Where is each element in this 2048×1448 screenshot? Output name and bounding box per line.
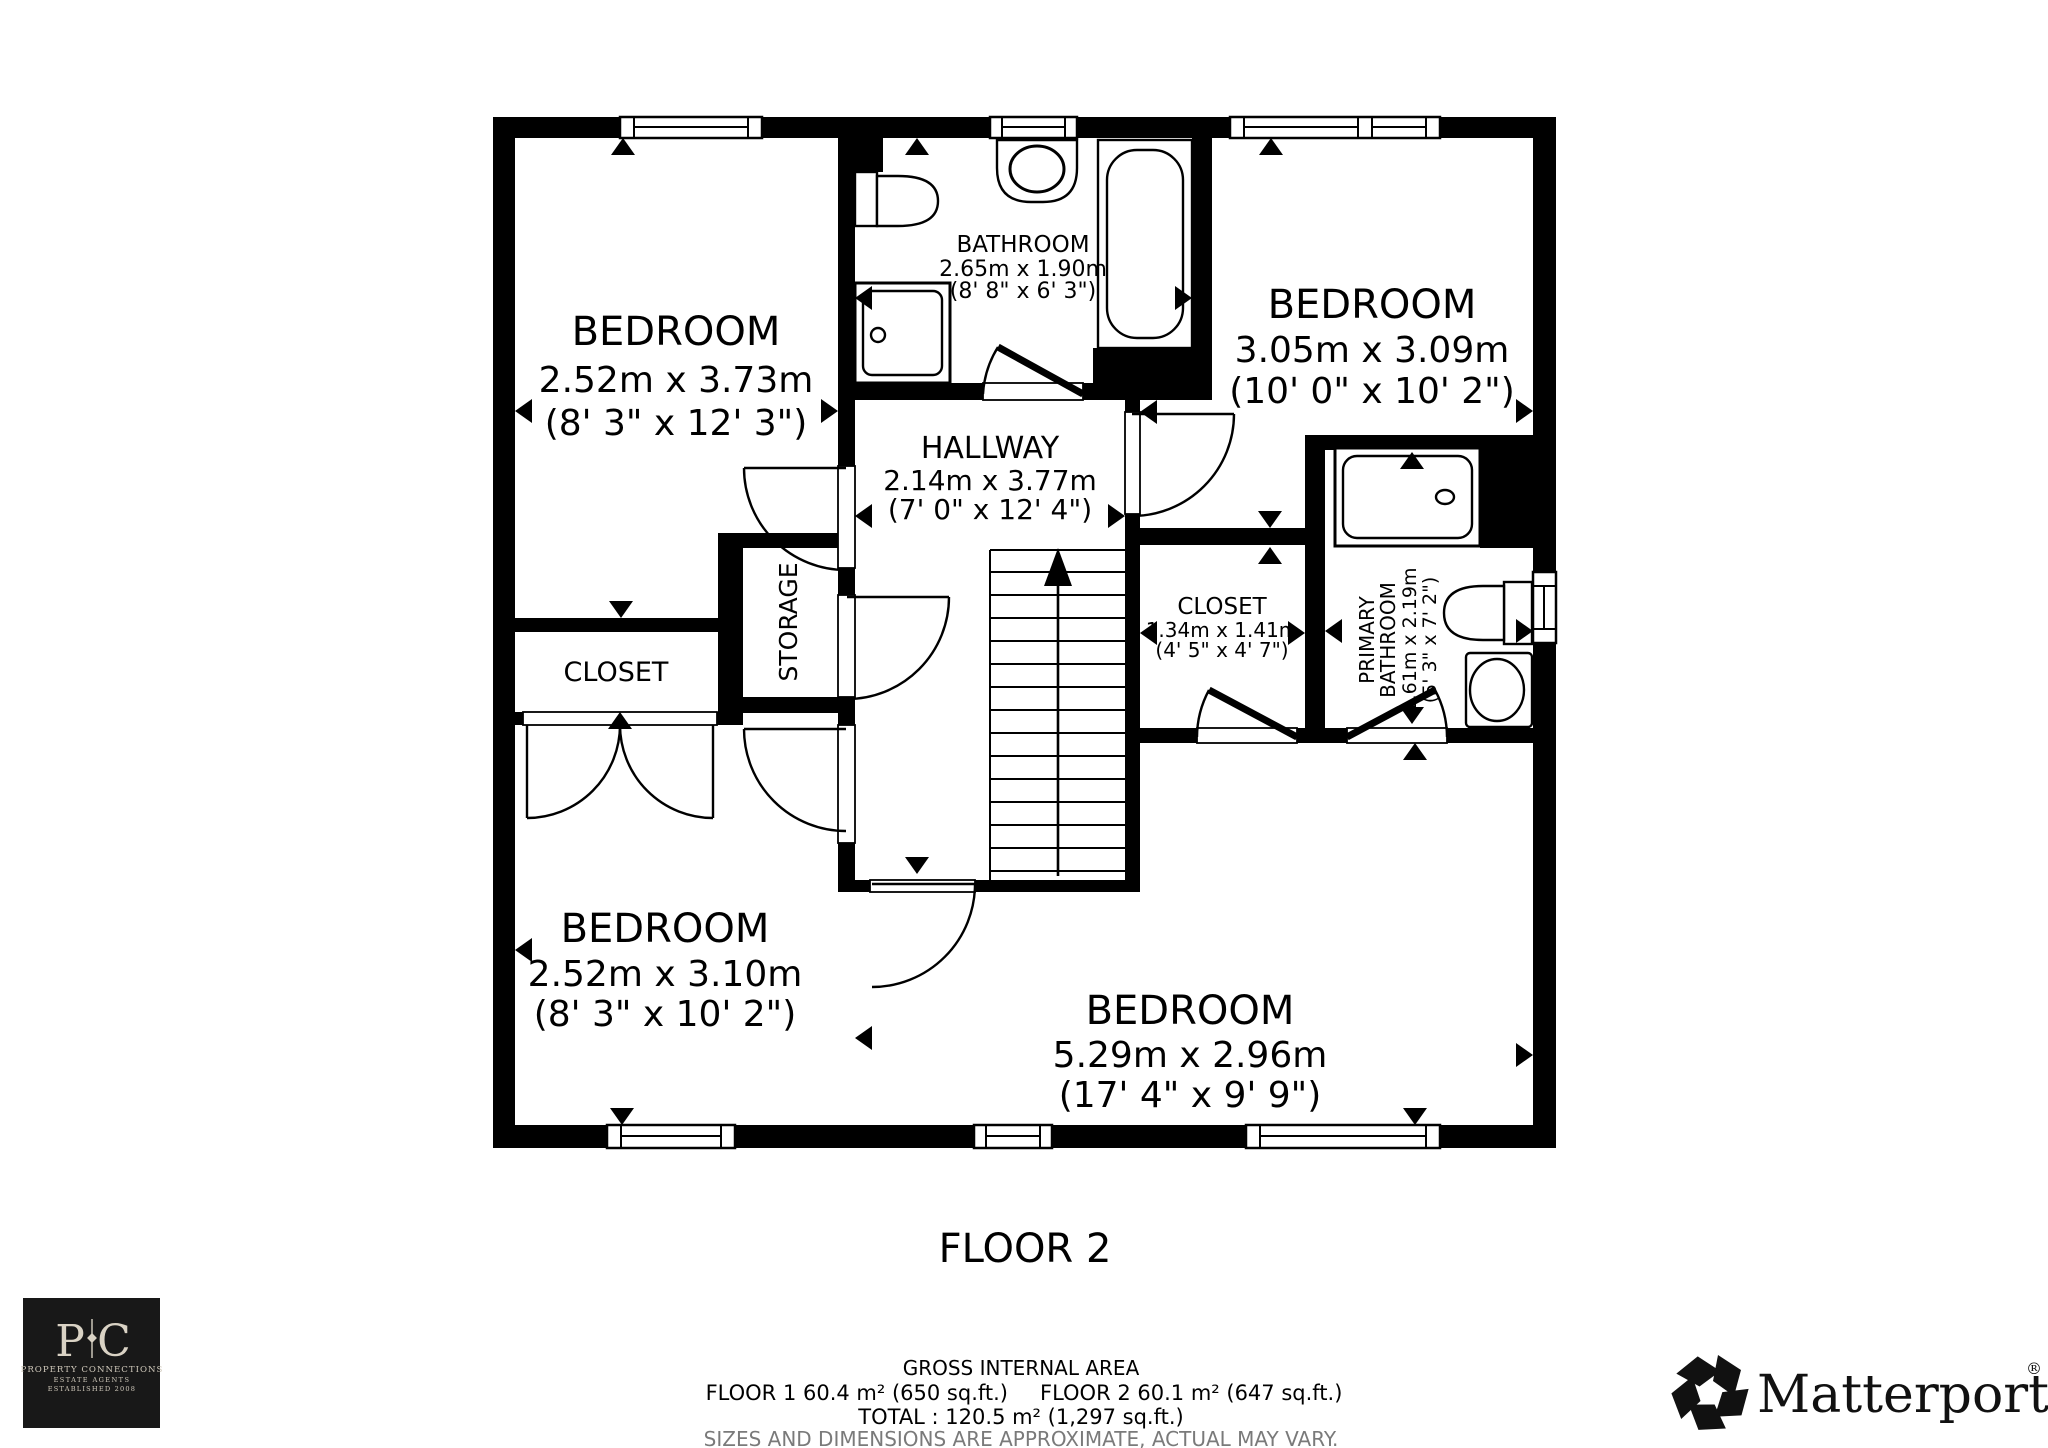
svg-text:BATHROOM: BATHROOM bbox=[1376, 582, 1400, 698]
svg-text:(4' 5" x 4' 7"): (4' 5" x 4' 7") bbox=[1155, 638, 1288, 662]
footer-floor1: FLOOR 1 60.4 m² (650 sq.ft.) bbox=[706, 1381, 1008, 1405]
matterport-icon bbox=[1663, 1352, 1756, 1442]
primary-sink-icon bbox=[1466, 653, 1532, 727]
svg-text:CLOSET: CLOSET bbox=[564, 657, 669, 688]
label-bedroom-top-left: BEDROOM 2.52m x 3.73m (8' 3" x 12' 3") bbox=[539, 309, 814, 444]
label-hallway: HALLWAY 2.14m x 3.77m (7' 0" x 12' 4") bbox=[883, 431, 1097, 526]
footer-title: GROSS INTERNAL AREA bbox=[903, 1356, 1140, 1380]
window bbox=[990, 117, 1077, 138]
floor-title: FLOOR 2 bbox=[939, 1226, 1112, 1272]
agency-tagline2: ESTABLISHED 2008 bbox=[48, 1385, 136, 1393]
window bbox=[620, 117, 762, 138]
sink-icon bbox=[997, 140, 1077, 202]
label-bedroom-top-right: BEDROOM 3.05m x 3.09m (10' 0" x 10' 2") bbox=[1229, 282, 1515, 412]
toilet-icon bbox=[855, 172, 938, 226]
svg-text:(17' 4" x 9' 9"): (17' 4" x 9' 9") bbox=[1059, 1075, 1322, 1116]
door-bedroom-bottom bbox=[870, 880, 975, 987]
matterport-registered-icon: ® bbox=[2026, 1359, 2042, 1378]
svg-text:2.52m x 3.73m: 2.52m x 3.73m bbox=[539, 360, 814, 401]
door-bathroom bbox=[983, 347, 1083, 400]
svg-text:(8' 8" x 6' 3"): (8' 8" x 6' 3") bbox=[950, 279, 1096, 304]
label-primary-bathroom: PRIMARY BATHROOM 1.61m x 2.19m (5' 3" x … bbox=[1355, 568, 1441, 713]
label-storage: STORAGE bbox=[774, 562, 803, 681]
footer: GROSS INTERNAL AREA FLOOR 1 60.4 m² (650… bbox=[704, 1356, 1343, 1448]
footer-total: TOTAL : 120.5 m² (1,297 sq.ft.) bbox=[857, 1405, 1183, 1429]
svg-text:BEDROOM: BEDROOM bbox=[1268, 282, 1477, 328]
svg-text:(5' 3" x 7' 2"): (5' 3" x 7' 2") bbox=[1419, 577, 1441, 704]
label-bathroom: BATHROOM 2.65m x 1.90m (8' 8" x 6' 3") bbox=[939, 232, 1107, 304]
stairs-up-arrow bbox=[1044, 548, 1072, 876]
agency-logo: P C PROPERTY CONNECTIONS ESTATE AGENTS E… bbox=[21, 1298, 164, 1428]
matterport-wordmark: Matterport bbox=[1757, 1365, 2048, 1425]
matterport-logo: Matterport ® bbox=[1663, 1352, 2048, 1442]
svg-text:5.29m x 2.96m: 5.29m x 2.96m bbox=[1053, 1035, 1328, 1076]
window bbox=[607, 1125, 735, 1148]
stairs bbox=[990, 548, 1125, 880]
door-closet-mid bbox=[1197, 690, 1297, 743]
footer-floor2: FLOOR 2 60.1 m² (647 sq.ft.) bbox=[1040, 1381, 1342, 1405]
door-bedroom-bottom-left bbox=[744, 725, 855, 843]
svg-text:CLOSET: CLOSET bbox=[1177, 594, 1267, 620]
label-closet-mid: CLOSET 1.34m x 1.41m (4' 5" x 4' 7") bbox=[1146, 594, 1299, 662]
agency-tagline1: ESTATE AGENTS bbox=[54, 1376, 131, 1384]
floorplan-svg: BEDROOM 2.52m x 3.73m (8' 3" x 12' 3") B… bbox=[0, 0, 2048, 1448]
svg-text:BEDROOM: BEDROOM bbox=[561, 906, 770, 952]
svg-text:BATHROOM: BATHROOM bbox=[956, 232, 1089, 258]
door-storage bbox=[838, 595, 949, 699]
room-labels: BEDROOM 2.52m x 3.73m (8' 3" x 12' 3") B… bbox=[528, 232, 1515, 1116]
agency-name: PROPERTY CONNECTIONS bbox=[21, 1365, 164, 1375]
label-bedroom-bottom: BEDROOM 5.29m x 2.96m (17' 4" x 9' 9") bbox=[1053, 988, 1328, 1116]
bathtub-icon bbox=[1098, 140, 1192, 348]
svg-text:(7' 0" x 12' 4"): (7' 0" x 12' 4") bbox=[888, 493, 1092, 526]
agency-initial-right: C bbox=[97, 1316, 131, 1367]
svg-text:BEDROOM: BEDROOM bbox=[572, 309, 781, 355]
agency-logo-background bbox=[23, 1298, 160, 1428]
svg-text:(8' 3" x 10' 2"): (8' 3" x 10' 2") bbox=[534, 994, 797, 1035]
svg-text:3.05m x 3.09m: 3.05m x 3.09m bbox=[1235, 330, 1510, 371]
svg-text:(10' 0" x 10' 2"): (10' 0" x 10' 2") bbox=[1229, 371, 1515, 412]
window bbox=[1533, 572, 1556, 643]
svg-text:1.61m x 2.19m: 1.61m x 2.19m bbox=[1399, 568, 1421, 713]
floorplan-page: BEDROOM 2.52m x 3.73m (8' 3" x 12' 3") B… bbox=[0, 0, 2048, 1448]
door-bedroom-top-right bbox=[1125, 412, 1234, 516]
footer-disclaimer: SIZES AND DIMENSIONS ARE APPROXIMATE, AC… bbox=[704, 1427, 1339, 1448]
svg-text:STORAGE: STORAGE bbox=[774, 562, 803, 681]
door-bedroom-top-left bbox=[744, 466, 855, 570]
label-closet-left: CLOSET bbox=[564, 657, 669, 688]
svg-text:BEDROOM: BEDROOM bbox=[1086, 988, 1295, 1034]
agency-initial-left: P bbox=[55, 1316, 85, 1367]
window bbox=[1246, 1125, 1440, 1148]
svg-text:(8' 3" x 12' 3"): (8' 3" x 12' 3") bbox=[545, 403, 808, 444]
window bbox=[974, 1125, 1052, 1148]
svg-text:2.52m x 3.10m: 2.52m x 3.10m bbox=[528, 954, 803, 995]
svg-text:HALLWAY: HALLWAY bbox=[921, 431, 1060, 466]
label-bedroom-bottom-left: BEDROOM 2.52m x 3.10m (8' 3" x 10' 2") bbox=[528, 906, 803, 1035]
window bbox=[1230, 117, 1440, 138]
